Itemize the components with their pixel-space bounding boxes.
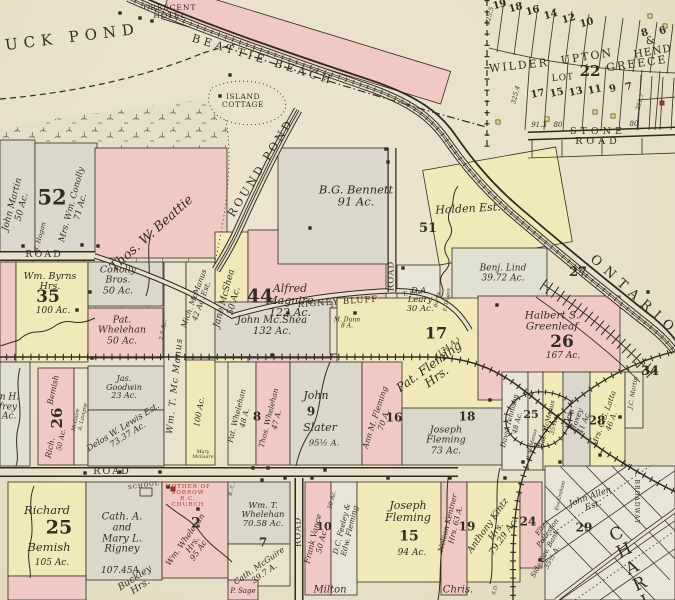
map-label: Holden Est. <box>435 201 501 216</box>
map-label: 22 <box>580 63 601 79</box>
map-label: STONE ROAD <box>560 127 637 148</box>
map-label: ONTARIO <box>587 253 675 340</box>
map-label: Conolly Bros. 50 Ac. <box>100 266 136 297</box>
map-label: 13 <box>568 86 584 99</box>
map-label: SCHOOL <box>128 482 160 492</box>
map-label: D.A. Leary 30 Ac. <box>406 287 433 315</box>
map-label: 28 <box>589 415 606 428</box>
map-label: T. East <box>402 289 423 298</box>
map-label: 6 <box>658 26 668 38</box>
map-label: 7 <box>624 82 633 94</box>
map-label: Cath. A. and Mary L. Rigney <box>102 512 143 555</box>
map-label: Alfred Maguire 122 Ac. <box>266 283 313 319</box>
map-label: 251.7 <box>636 93 647 111</box>
map-label: 26 <box>550 333 574 351</box>
map-label: CRESCENT HOTEL <box>144 4 197 20</box>
map-label: LOT <box>551 73 574 85</box>
map-label: 12 <box>561 13 577 27</box>
map-label: 167 Ac. <box>546 352 580 362</box>
map-label: John Mc.Shea 132 Ac. <box>237 316 307 338</box>
map-label: 105 Ac. <box>35 559 69 569</box>
map-label: BEATTIE BEACH <box>190 33 335 88</box>
map-label: Jane McShea 50 Ac. <box>213 269 247 332</box>
map-label: J.C. Martin <box>628 376 640 409</box>
map-labels: BUCK PONDCRESCENT HOTELBEATTIE BEACHISLA… <box>0 0 675 600</box>
map-label: Anthony Kintz Hrs. 79.29 Ac. <box>467 497 528 567</box>
map-label: UPTON <box>560 47 614 67</box>
map-label: 325.5 <box>484 6 496 26</box>
map-label: 95½ A. <box>309 439 340 448</box>
map-label: 25 <box>46 518 72 539</box>
map-label: B.G. Bennett 91 Ac. <box>319 184 393 209</box>
map-label: David Tennison 48 Ac. <box>500 394 528 451</box>
map-label: J. McManus <box>527 429 539 459</box>
map-label: GREECE <box>606 54 669 74</box>
map-label: ROAD <box>294 517 303 547</box>
map-label: Frank Vance 50 Ac. <box>303 513 332 567</box>
map-label: Pat. Whelehan 50 Ac. <box>98 316 146 347</box>
map-label: 107.45A <box>101 567 139 577</box>
map-label: MOTHER OF SORROW R.C. CHURCH <box>165 485 211 509</box>
map-label: Eliz. Pulleston <box>529 513 560 549</box>
map-label: Side Sav. Bank 35½ A. <box>530 529 568 582</box>
map-label: John <box>303 390 328 402</box>
map-label: John H. Jeffrey 76 Ac. <box>0 393 19 422</box>
map-label: 17 <box>530 88 546 101</box>
map-label: 91.3 <box>531 122 547 130</box>
map-label: Rich. <box>45 437 58 459</box>
map-label: Eva Graham <box>555 481 567 511</box>
map-label: 11 <box>587 84 603 97</box>
map-label: John Allen Est. <box>568 486 616 518</box>
map-label: Bemish <box>47 374 62 405</box>
map-label: 26 <box>49 408 65 429</box>
map-label: Burtis <box>434 292 442 308</box>
map-label: Orin Hoxey 41 Ac. <box>561 405 592 436</box>
map-label: ISLAND COTTAGE <box>222 93 264 109</box>
map-label: Mrs. G.G. Latta 46 A. <box>590 390 625 450</box>
map-label: Mich. McManus 42 Ac. Est. <box>180 268 216 331</box>
map-label: Chris. <box>443 586 473 597</box>
plat-map: BUCK PONDCRESCENT HOTELBEATTIE BEACHISLA… <box>0 0 675 600</box>
map-label: 34 <box>641 365 659 379</box>
map-label: Wm. Byrns Hrs. <box>24 272 77 293</box>
map-label: 51 <box>419 222 437 236</box>
map-label: WILDER <box>488 57 549 75</box>
map-label: Buckley Hrs. <box>116 564 159 600</box>
map-label: Slater <box>303 422 337 434</box>
map-label: 18 <box>508 2 524 16</box>
map-label: 29 <box>576 522 593 535</box>
map-label: Cath. McGuire 39.7 A. <box>233 546 292 594</box>
map-label: 80 <box>630 121 639 129</box>
map-label: Halbert S. Greenleaf <box>525 311 579 334</box>
map-label: Ann M. Fleming 70 A. <box>362 385 399 452</box>
map-label: Pat. Whelehan 48 A. <box>227 388 256 445</box>
map-label: McGuire <box>72 408 82 432</box>
map-label: Mrs. Wm. Conolly 71 Ac. <box>58 166 96 245</box>
map-label: E. Dugan <box>443 288 452 312</box>
map-label: BROADWAY <box>633 480 639 525</box>
map-label: 100 Ac. <box>36 307 70 317</box>
map-label: 24 <box>520 516 537 529</box>
map-label: Jas. Goodwin 23 Ac. <box>106 375 142 401</box>
map-label: & HEND <box>631 33 673 62</box>
map-label: 27 <box>569 266 587 280</box>
map-label: 19 <box>459 521 476 534</box>
map-label: 25 <box>523 409 538 421</box>
map-label: 8 <box>640 28 650 40</box>
map-label: Wm. Whelehan Hrs. 95 Ac. <box>165 512 221 577</box>
map-label: 18 <box>459 411 476 424</box>
map-label: 325.4 <box>510 85 522 105</box>
map-label: ROAD <box>93 467 130 477</box>
map-label: S.D. <box>492 584 500 595</box>
map-label: Wm. T. Whelehan 70.58 Ac. <box>241 502 284 530</box>
map-label: Wm. T. Mc Manus <box>166 337 186 434</box>
map-label: ROAD <box>387 261 396 291</box>
map-label: 44 <box>247 287 273 308</box>
map-label: BUCK POND <box>0 21 141 56</box>
map-label: Mary McGuire <box>192 450 213 460</box>
map-label: D.C. Feeley & Edw. Fleming <box>332 503 360 558</box>
map-label: 50 Ac. <box>56 428 68 451</box>
map-label: 16 <box>386 412 403 425</box>
map-label: 9 <box>608 84 617 96</box>
map-label: 7 <box>259 537 267 550</box>
map-label: 15 <box>399 529 418 544</box>
map-label: Jas. McManus 35 Ac. <box>539 400 564 448</box>
map-label: M. Dunn 8 A. <box>334 318 360 331</box>
map-label: Joseph Fleming <box>385 500 431 524</box>
map-label: 2 <box>191 516 201 531</box>
map-label: ROAD <box>25 250 62 260</box>
map-label: 2.5 Ac. <box>159 319 169 341</box>
map-label: Milton <box>313 586 346 597</box>
map-label: John Martin 50 Ac. <box>2 177 35 235</box>
map-label: 14 <box>543 9 559 23</box>
map-label: 100 Ac. <box>193 396 207 428</box>
map-label: 35 <box>36 288 60 306</box>
map-label: Joseph Fleming 73 Ac. <box>426 426 466 457</box>
map-label: RIGNEY BLUFF <box>297 296 378 311</box>
map-label: Benj. Lind 39.72 Ac. <box>480 264 527 283</box>
map-label: 94 Ac. <box>398 549 427 559</box>
map-label: P. Sage <box>230 588 255 596</box>
map-label: (134 A.) <box>434 337 461 360</box>
map-label: 10 <box>579 17 595 31</box>
map-label: A. Lavigne <box>78 403 89 431</box>
map-label: Bemish <box>27 541 70 553</box>
map-label: 50 Ac. <box>328 490 339 510</box>
map-label: C H A R L <box>596 517 672 600</box>
map-label: M. Hogan <box>32 221 47 254</box>
map-label: 80 <box>554 122 563 130</box>
map-label: 17 <box>425 324 447 341</box>
map-label: Pat. Fleming Hrs. <box>394 339 472 405</box>
map-label: 9 <box>307 406 315 419</box>
map-label: 8 <box>253 411 261 424</box>
map-label: Thos. Whelehan 47 A. <box>258 387 288 450</box>
map-label: Nelson Kentner Hrs. 63 A. <box>437 493 467 555</box>
map-label: Thos. W. Beattie <box>108 193 197 275</box>
map-label: 10 <box>316 521 331 533</box>
map-label: R.C. <box>229 481 238 496</box>
map-label: 16 <box>525 5 541 19</box>
map-label: 52 <box>37 187 66 210</box>
map-label: Delos W. Lewis Est. 73.37 Ac. <box>86 402 167 462</box>
map-label: ROUND POND <box>226 117 296 219</box>
map-label: Richard <box>24 504 70 516</box>
map-label: 15 <box>549 87 565 100</box>
map-label: 19 <box>492 0 508 13</box>
